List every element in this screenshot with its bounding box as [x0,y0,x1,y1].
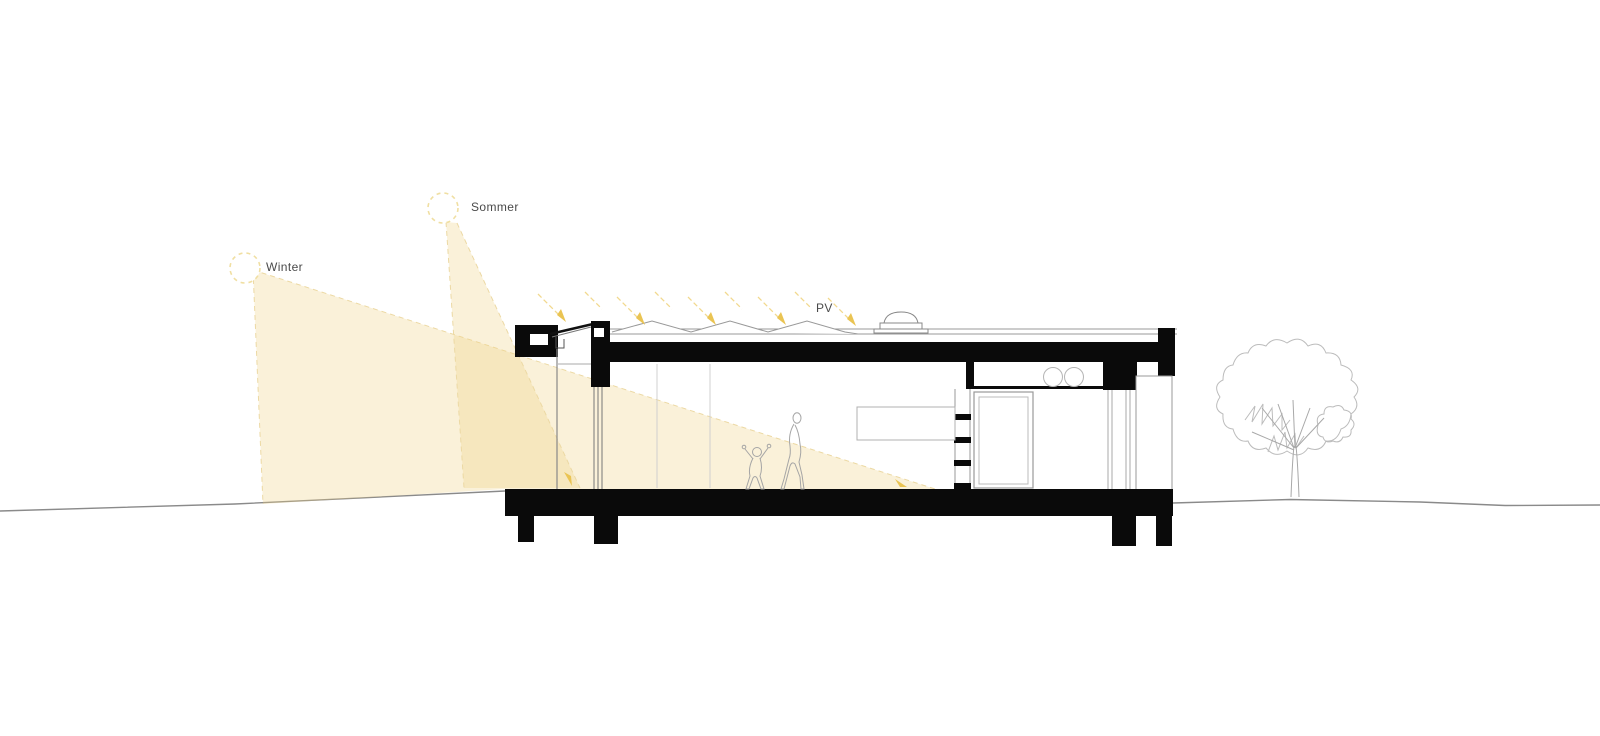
winter-sun-label: Winter [266,260,303,274]
roof-slab [608,342,1175,362]
kitchen-niche [966,362,1122,389]
left-wall [591,321,610,387]
kitchen-island [857,407,955,440]
right-facade [1108,376,1172,490]
cabinet [974,392,1033,488]
tree-icon [1217,339,1358,497]
floor-slab [505,489,1173,546]
pv-label: PV [816,301,833,315]
duct-circle [1065,368,1084,387]
section-drawing [0,0,1600,736]
winter-sun-icon [230,253,260,283]
shelf-unit [954,389,971,489]
right-parapet [1158,328,1175,376]
tree-crown [1217,339,1358,455]
skylight-icon [874,312,928,333]
duct-circle [1044,368,1063,387]
pv-panels [612,321,858,334]
side-wall-panel [1136,376,1172,490]
summer-sun-icon [428,193,458,223]
right-beam [1103,362,1137,390]
summer-sun-label: Sommer [471,200,519,214]
page: Winter Sommer PV [0,0,1600,736]
summer-sun-beam [446,222,580,488]
